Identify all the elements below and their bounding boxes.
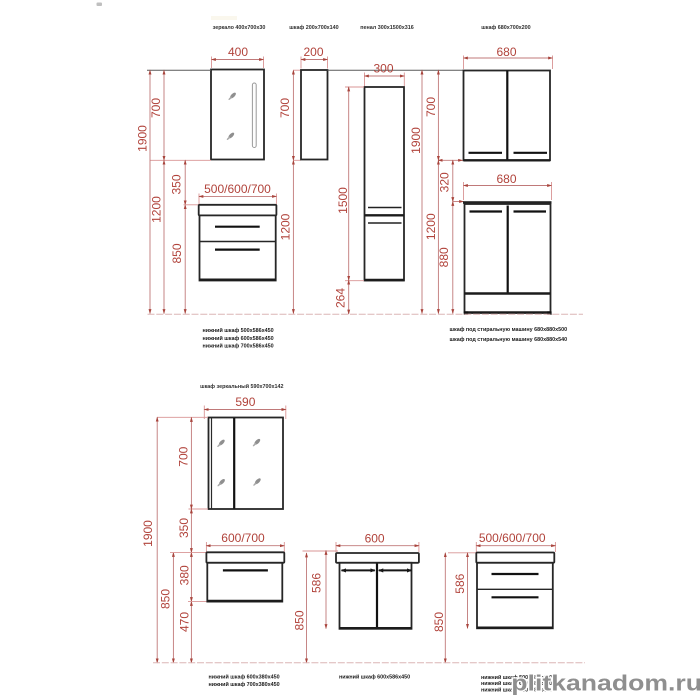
svg-text:1900: 1900 [141,520,155,547]
svg-text:320: 320 [437,172,451,192]
svg-text:586: 586 [453,573,467,593]
svg-text:1900: 1900 [136,125,150,152]
svg-text:1200: 1200 [279,213,293,240]
svg-text:нижний шкаф 600х380х450: нижний шкаф 600х380х450 [209,674,280,681]
svg-text:400: 400 [228,45,248,59]
svg-text:зеркало 400х700х30: зеркало 400х700х30 [213,25,266,31]
svg-text:880: 880 [437,247,451,267]
svg-text:1200: 1200 [149,196,163,223]
svg-text:700: 700 [177,446,191,466]
svg-text:586: 586 [310,573,324,593]
svg-text:1200: 1200 [424,213,438,240]
svg-text:200: 200 [303,45,323,59]
svg-text:850: 850 [432,612,446,632]
svg-text:700: 700 [149,98,163,118]
svg-text:680: 680 [496,172,516,186]
svg-text:нижний шкаф 600х586х450: нижний шкаф 600х586х450 [203,335,274,342]
svg-text:590: 590 [235,395,255,409]
svg-text:шкаф 680х700х200: шкаф 680х700х200 [481,24,530,31]
svg-text:850: 850 [170,243,184,263]
svg-text:plitkanadom.ru: plitkanadom.ru [511,672,700,696]
svg-text:шкаф под стиральную машину 680: шкаф под стиральную машину 680х880х500 [450,326,568,333]
svg-text:850: 850 [159,589,173,609]
svg-text:500/600/700: 500/600/700 [204,182,271,196]
svg-text:пенал 300х1500х316: пенал 300х1500х316 [360,25,413,31]
svg-text:1900: 1900 [409,127,423,154]
svg-text:1500: 1500 [336,187,350,214]
svg-text:нижний шкаф 700х586х450: нижний шкаф 700х586х450 [203,342,274,349]
svg-text:нижний шкаф 500х586х450: нижний шкаф 500х586х450 [203,327,274,334]
svg-text:380: 380 [178,565,192,585]
svg-text:850: 850 [292,610,306,630]
svg-text:300: 300 [373,62,393,76]
svg-text:шкаф 200х700х140: шкаф 200х700х140 [289,24,338,31]
svg-text:700: 700 [424,97,438,117]
svg-text:470: 470 [178,612,192,632]
svg-text:шкаф под стиральную машину 680: шкаф под стиральную машину 680х880х540 [450,336,568,343]
svg-text:680: 680 [496,45,516,59]
svg-text:600: 600 [365,532,385,546]
svg-text:700: 700 [278,98,292,118]
svg-text:264: 264 [334,288,348,308]
svg-text:нижний шкаф 700х380х450: нижний шкаф 700х380х450 [209,681,280,688]
svg-text:нижний шкаф 600х586х450: нижний шкаф 600х586х450 [339,674,410,681]
svg-text:шкаф зеркальный 590х700х142: шкаф зеркальный 590х700х142 [200,383,283,390]
svg-text:350: 350 [170,174,184,194]
svg-text:600/700: 600/700 [221,531,265,545]
svg-text:350: 350 [177,518,191,538]
svg-text:500/600/700: 500/600/700 [479,531,546,545]
